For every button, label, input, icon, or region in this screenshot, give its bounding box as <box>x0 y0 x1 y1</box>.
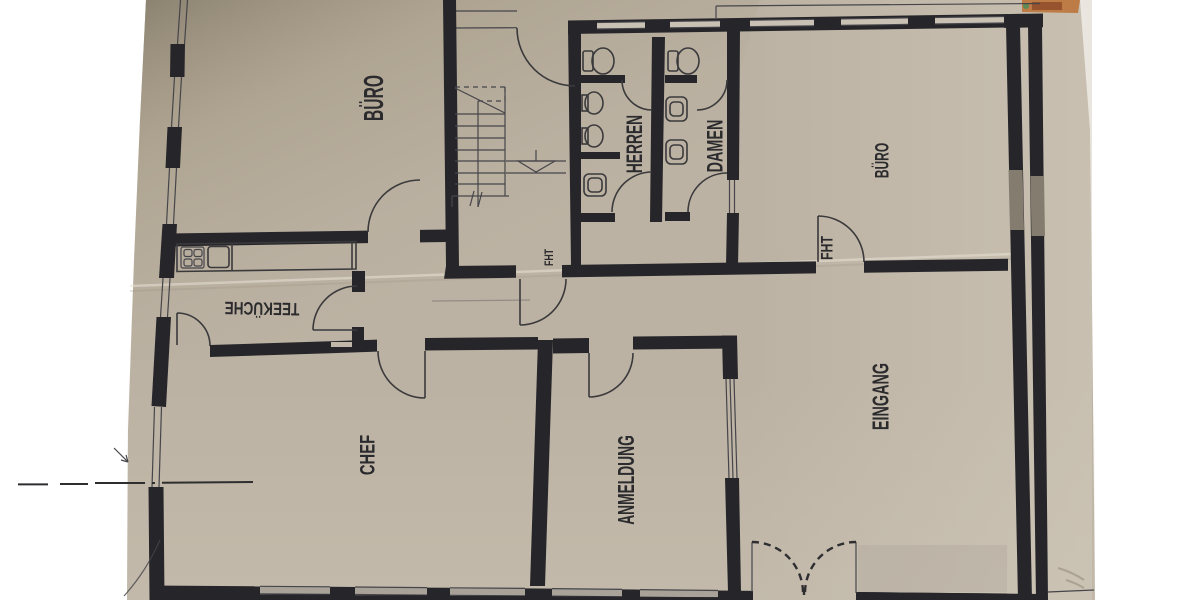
svg-text:HERREN: HERREN <box>621 115 646 173</box>
svg-text:BÜRO: BÜRO <box>359 75 390 121</box>
svg-text:BÜRO: BÜRO <box>870 143 893 178</box>
svg-text:TEEKÜCHE: TEEKÜCHE <box>224 297 299 320</box>
svg-text:CHEF: CHEF <box>355 435 379 475</box>
svg-text:FHT: FHT <box>543 249 557 266</box>
svg-text:ANMELDUNG: ANMELDUNG <box>613 435 638 525</box>
svg-text:EINGANG: EINGANG <box>869 363 894 430</box>
svg-text:DAMEN: DAMEN <box>703 120 728 173</box>
svg-text:FHT: FHT <box>819 236 837 260</box>
